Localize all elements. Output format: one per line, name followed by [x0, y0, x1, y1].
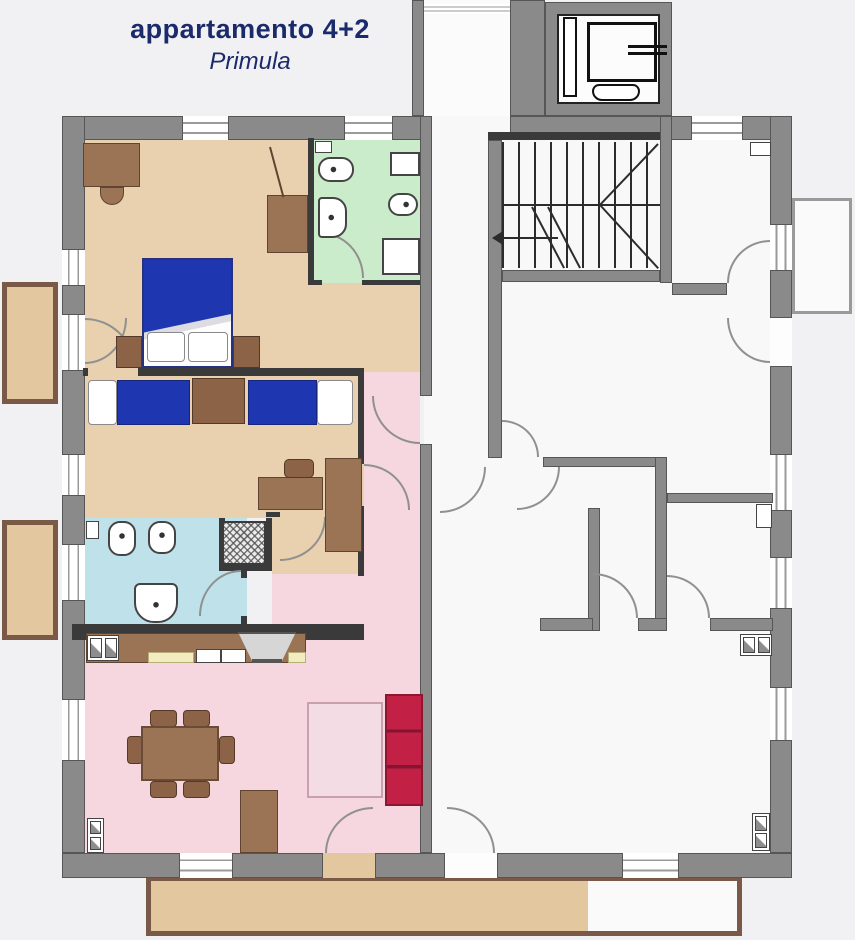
wall-stair-left: [488, 140, 502, 458]
wall-neighbor-closet-bottom: [638, 618, 667, 631]
chair: [183, 710, 210, 727]
window-bottom-neighbor: [623, 853, 678, 878]
neighbor-bottom-door: [445, 853, 497, 878]
wall-left: [62, 760, 85, 853]
wall-right: [770, 366, 792, 455]
fridge-icon: [87, 635, 119, 661]
wall-top: [392, 116, 422, 140]
sofa: [385, 694, 423, 806]
twin-bed-blanket: [248, 380, 317, 425]
bedroom-1-hall-floor: [311, 283, 420, 372]
radiator-icon: [87, 818, 104, 853]
toilet-icon: [318, 157, 354, 182]
window-right-4: [770, 688, 792, 740]
wall-right: [770, 608, 792, 688]
radiator-icon-cell: [90, 837, 101, 850]
radiator-icon-cell: [90, 821, 101, 834]
window-right-3: [770, 558, 792, 608]
radiator-icon-cell: [758, 637, 770, 653]
fridge-icon-cell: [90, 638, 102, 658]
elevator-door-swing-icon: [592, 84, 640, 101]
wall-bottom: [232, 853, 323, 878]
sink-icon: [134, 583, 178, 623]
wall-bottom: [62, 853, 180, 878]
wall-bedroom1-bath: [308, 138, 314, 283]
elevator-door-rail-icon: [563, 17, 577, 97]
window-left-bedroom1: [62, 250, 85, 285]
wall-bath-blue-right: [241, 571, 247, 578]
window-top-neighbor: [692, 116, 742, 140]
wall-elevator-side: [660, 116, 672, 283]
balcony-left-2: [2, 520, 58, 640]
kitchen-worktop: [148, 652, 194, 663]
tv-stand: [240, 790, 278, 853]
chair: [284, 459, 314, 478]
towel-radiator-icon: [315, 141, 332, 153]
wall-left: [62, 285, 85, 315]
wall-top: [228, 116, 345, 140]
rug: [307, 702, 383, 798]
chair: [219, 736, 235, 764]
chair: [150, 781, 177, 798]
building-entrance-door: [424, 4, 510, 14]
fridge-icon-cell: [105, 638, 117, 658]
elevator-counterweight-icon2: [628, 52, 667, 55]
wall-shower-nook: [266, 518, 272, 571]
wall-bedroom1-bedroom2: [138, 368, 364, 376]
page-subtitle: Primula: [40, 48, 460, 76]
wardrobe: [267, 195, 308, 253]
balcony2-door: [62, 545, 85, 600]
bidet-icon: [148, 521, 176, 554]
window-right-2: [770, 455, 792, 510]
wall-bottom: [497, 853, 623, 878]
wall-neighbor-closet-bottom: [540, 618, 593, 631]
pillow: [188, 332, 228, 362]
plan-title: appartamento 4+2 Primula: [40, 14, 460, 76]
wall-bath-blue-right: [241, 616, 247, 624]
boiler-icon: [756, 504, 772, 528]
towel-radiator-icon: [86, 521, 99, 539]
window-left-living: [62, 700, 85, 760]
wall-neighbor-closet-right: [655, 457, 667, 631]
shower-icon: [222, 521, 266, 565]
floor-plan: appartamento 4+2 Primula: [0, 0, 855, 940]
washer-icon: [390, 152, 420, 176]
wall-corridor-left: [412, 0, 424, 116]
stair-mid-landing-line: [502, 204, 660, 206]
balcony1-door: [62, 315, 85, 370]
radiator-icon: [752, 813, 770, 851]
balcony-bottom-door: [323, 853, 375, 878]
balcony-bottom-tan: [151, 881, 588, 931]
nightstand: [233, 336, 260, 368]
wall-bath-green-bottom: [308, 280, 322, 285]
balcony-right: [792, 198, 852, 314]
toilet-icon: [108, 521, 136, 556]
wall-neighbor-closet-bottom: [710, 618, 773, 631]
bidet-icon: [388, 193, 418, 216]
pillow: [88, 380, 117, 425]
window-bottom-living: [180, 853, 232, 878]
shower-icon: [382, 238, 420, 275]
wall-stair-top: [488, 132, 672, 140]
pillow: [317, 380, 353, 425]
wall-neighbor-room-bottom: [672, 283, 727, 295]
window-top-bedroom1: [183, 116, 228, 140]
wall-bedroom1-bedroom2: [83, 368, 88, 376]
radiator-icon-cell: [755, 833, 767, 848]
wall-bottom: [375, 853, 445, 878]
kitchen-sink-icon: [196, 649, 246, 663]
wall-left: [62, 495, 85, 545]
wall-left: [62, 116, 85, 250]
wall-right: [770, 270, 792, 318]
window-top-bathroom: [345, 116, 392, 140]
stair-direction-arrow-head: [492, 231, 503, 245]
window-left-bedroom2: [62, 455, 85, 495]
wall-bedroom2-south: [266, 512, 280, 517]
chair: [150, 710, 177, 727]
radiator-icon: [740, 634, 772, 656]
desk: [258, 477, 323, 510]
wall-right: [770, 740, 792, 853]
wardrobe: [83, 143, 140, 187]
wardrobe: [325, 458, 362, 552]
wall-left: [62, 600, 85, 700]
elevator-counterweight-icon: [628, 45, 667, 48]
wall-neighbor-h: [667, 493, 773, 503]
wall-right: [770, 116, 792, 225]
sink-icon: [318, 197, 347, 238]
wall-left: [62, 370, 85, 455]
balcony-left-1: [2, 282, 58, 404]
wall-bath-green-bottom: [362, 280, 420, 285]
pillow: [147, 332, 185, 362]
stair-direction-arrow-shaft: [500, 237, 558, 239]
page-title: appartamento 4+2: [40, 14, 460, 45]
balcony-right-door: [770, 318, 792, 366]
window-right-1: [770, 225, 792, 270]
wall-apartment-boundary: [420, 116, 432, 396]
wall-neighbor-landing: [543, 457, 667, 467]
wall-bottom: [678, 853, 792, 878]
cooker-hood-base: [252, 659, 282, 663]
radiator-icon-cell: [743, 637, 755, 653]
wall-bedroom2-hall: [358, 372, 364, 464]
kitchen-worktop: [288, 652, 306, 663]
balcony-bottom: [146, 876, 742, 936]
boiler-icon: [750, 142, 771, 156]
wall-stair-bottom: [502, 270, 660, 282]
nightstand: [116, 336, 142, 368]
chair: [183, 781, 210, 798]
wall-corridor-right: [510, 0, 545, 116]
wall-right: [770, 510, 792, 558]
radiator-icon-cell: [755, 816, 767, 831]
twin-bed-blanket: [117, 380, 190, 425]
dining-table: [141, 726, 219, 781]
nightstand: [192, 378, 245, 424]
